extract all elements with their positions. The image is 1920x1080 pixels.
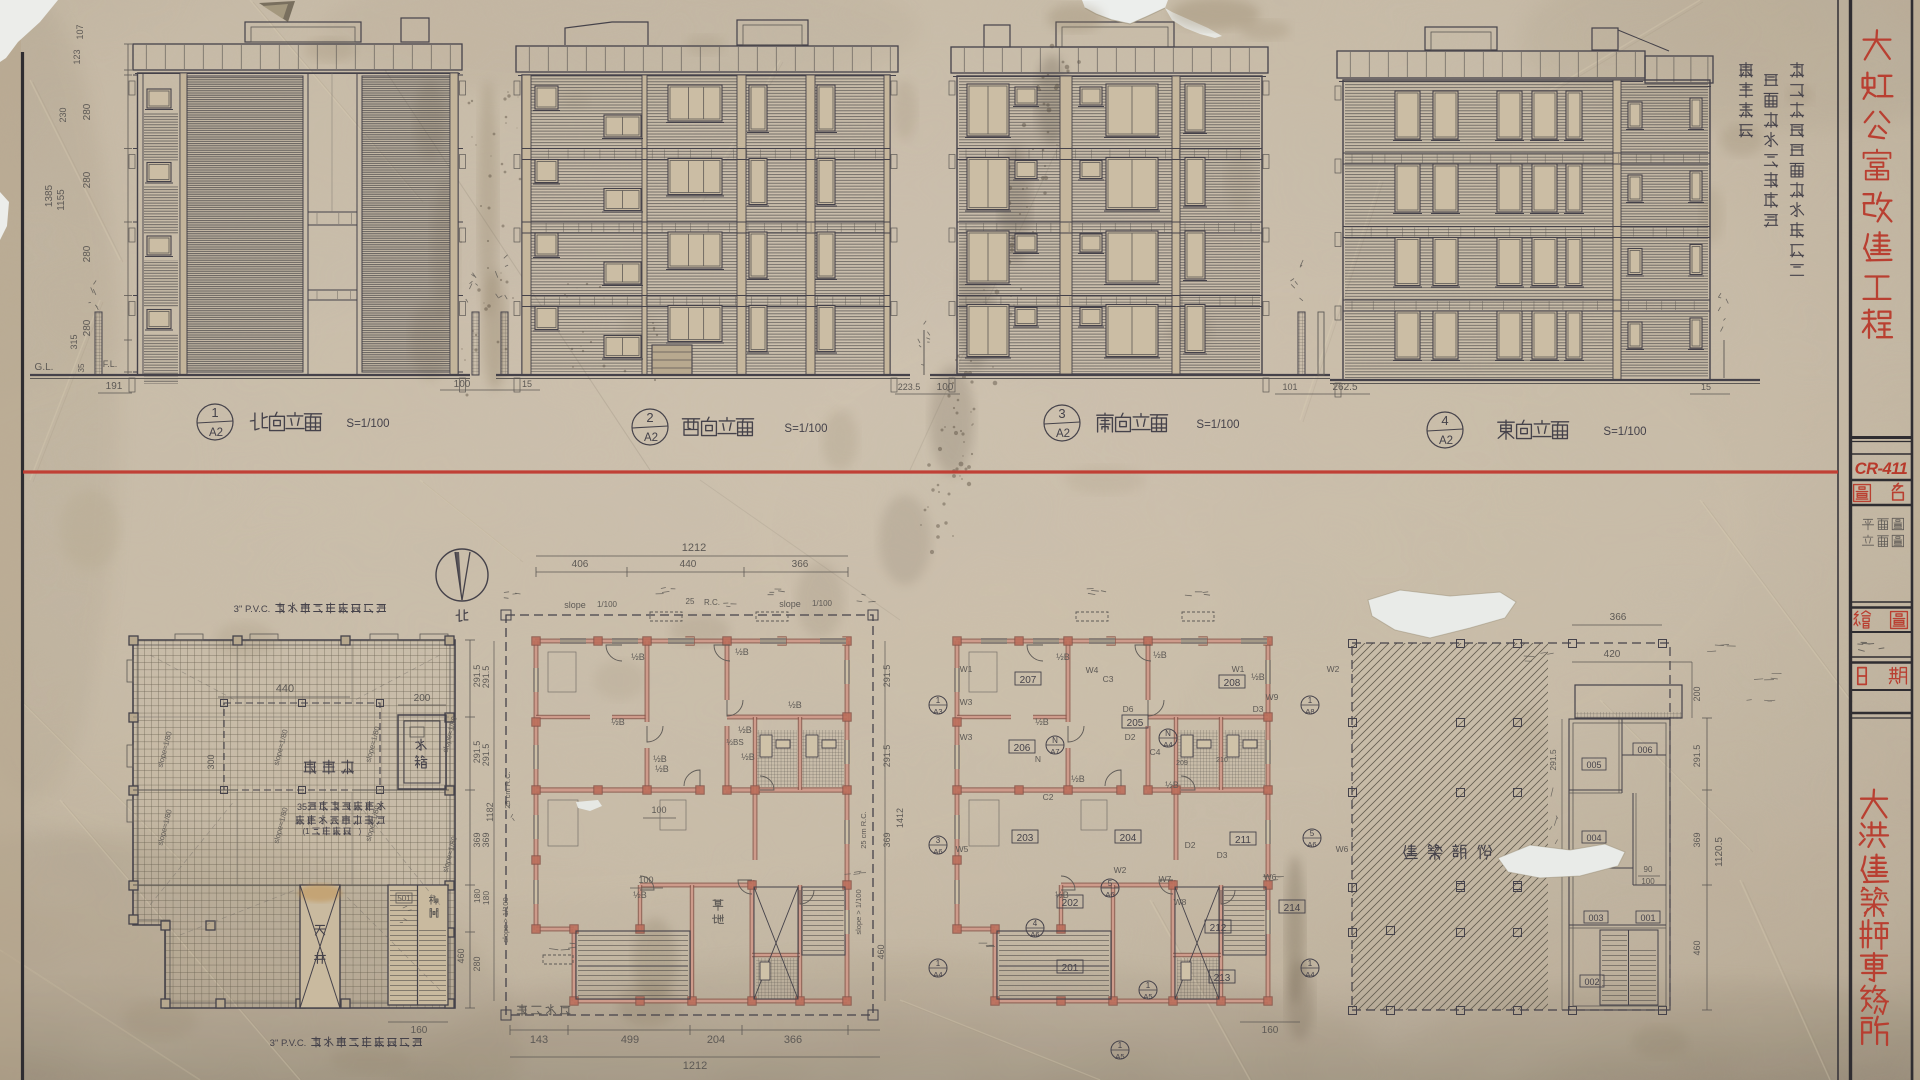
svg-text:3: 3 [1058,406,1065,421]
svg-text:A2: A2 [644,432,658,444]
svg-text:1: 1 [1308,959,1313,968]
svg-text:291.5: 291.5 [1548,749,1558,771]
svg-text:1212: 1212 [682,542,706,554]
svg-text:100: 100 [937,382,954,393]
svg-text:A4: A4 [1305,970,1314,979]
svg-text:369: 369 [1692,832,1702,847]
svg-text:½B: ½B [631,652,645,662]
svg-text:A4: A4 [933,970,942,979]
svg-text:W4: W4 [1086,665,1099,675]
svg-text:1/100: 1/100 [812,599,833,608]
svg-text:A5: A5 [1115,1052,1124,1061]
svg-text:A8: A8 [1305,707,1314,716]
svg-text:366: 366 [1610,612,1627,623]
svg-text:½BS: ½BS [726,738,743,747]
svg-text:369: 369 [882,832,892,847]
svg-text:2: 2 [646,410,653,425]
svg-text:280: 280 [82,319,93,336]
svg-text:366: 366 [784,1034,802,1046]
svg-text:A6: A6 [933,847,942,856]
svg-text:002: 002 [1584,977,1599,987]
svg-text:100: 100 [454,379,471,390]
svg-text:A6: A6 [1105,890,1114,899]
svg-text:460: 460 [876,944,886,959]
svg-text:slope: slope [779,599,801,609]
svg-text:211: 211 [1235,835,1251,846]
svg-text:209: 209 [1176,760,1188,767]
svg-text:D2: D2 [1125,732,1136,742]
svg-text:½B: ½B [611,717,625,727]
svg-text:003: 003 [1588,913,1603,923]
svg-text:291.5: 291.5 [481,666,491,689]
svg-text:206: 206 [1014,743,1031,754]
svg-text:½B: ½B [1071,774,1085,784]
svg-text:A6: A6 [1307,840,1316,849]
svg-text:A4: A4 [1163,740,1172,749]
svg-text:½B: ½B [741,752,755,762]
svg-text:440: 440 [276,683,294,695]
svg-text:½B: ½B [1153,650,1167,660]
svg-text:406: 406 [572,559,589,570]
svg-text:4: 4 [1441,413,1448,428]
svg-text:006: 006 [1637,745,1652,755]
svg-text:25: 25 [686,597,695,606]
svg-text:1: 1 [1146,981,1151,990]
svg-text:CR-411: CR-411 [1855,460,1908,478]
svg-text:S=1/100: S=1/100 [346,418,389,430]
svg-text:35: 35 [297,802,307,812]
svg-text:005: 005 [1586,760,1601,770]
svg-text:204: 204 [1120,833,1137,844]
svg-text:160: 160 [411,1025,428,1036]
svg-text:499: 499 [621,1034,639,1046]
svg-text:123: 123 [72,49,82,64]
svg-text:W3: W3 [960,732,973,742]
svg-text:5: 5 [1310,829,1315,838]
svg-text:slope > 1/100: slope > 1/100 [501,897,510,942]
svg-text:C3: C3 [1103,674,1114,684]
svg-text:366: 366 [792,559,809,570]
svg-text:W2: W2 [1114,865,1127,875]
svg-text:W2: W2 [1327,664,1340,674]
svg-text:207: 207 [1020,675,1037,686]
svg-text:291.5: 291.5 [882,665,892,688]
svg-text:160: 160 [1262,1025,1279,1036]
svg-text:004: 004 [1586,833,1601,843]
svg-text:501: 501 [397,894,411,903]
svg-text:W1: W1 [1232,664,1245,674]
svg-text:280: 280 [82,171,93,188]
svg-text:280: 280 [82,245,93,262]
svg-text:): ) [359,827,362,836]
svg-text:1: 1 [936,696,941,705]
svg-text:N: N [1165,729,1171,738]
svg-text:210: 210 [1216,757,1228,764]
svg-text:½B: ½B [1035,717,1049,727]
svg-text:440: 440 [680,559,697,570]
svg-text:1412: 1412 [895,808,905,828]
svg-text:½B: ½B [1055,890,1069,900]
svg-text:300: 300 [206,754,216,769]
svg-text:A5: A5 [1143,992,1152,1001]
svg-text:100: 100 [1641,877,1655,886]
svg-text:1/100: 1/100 [597,600,618,609]
svg-text:½B: ½B [1251,672,1265,682]
svg-text:½B: ½B [788,700,802,710]
svg-text:D3: D3 [1253,704,1264,714]
svg-text:5: 5 [1108,879,1113,888]
svg-text:N: N [1052,736,1058,745]
svg-text:230: 230 [58,107,68,122]
svg-text:460: 460 [456,948,466,963]
svg-text:A7: A7 [1050,747,1059,756]
svg-text:A2: A2 [1439,435,1453,447]
svg-text:D6: D6 [1123,704,1134,714]
svg-text:460: 460 [1692,940,1702,955]
svg-text:S=1/100: S=1/100 [784,423,827,435]
svg-text:W8: W8 [1174,897,1187,907]
svg-text:C4: C4 [1150,747,1161,757]
svg-text:slope: slope [564,600,586,610]
svg-text:200: 200 [414,693,431,704]
svg-text:203: 203 [1017,833,1034,844]
svg-text:180: 180 [481,891,491,905]
svg-text:291.5: 291.5 [481,744,491,767]
svg-text:101: 101 [1282,382,1297,392]
svg-text:1: 1 [211,405,218,420]
svg-text:214: 214 [1284,903,1301,914]
svg-text:25 cm R.C.: 25 cm R.C. [859,811,868,849]
svg-text:3: 3 [936,836,941,845]
svg-text:A3: A3 [933,707,942,716]
svg-text:W9: W9 [1266,692,1279,702]
svg-text:1: 1 [936,959,941,968]
svg-text:201: 201 [1062,963,1079,974]
svg-text:½B: ½B [735,647,749,657]
svg-text:4: 4 [1033,919,1038,928]
svg-text:1: 1 [1308,696,1313,705]
svg-text:143: 143 [530,1034,548,1046]
svg-text:N: N [1035,754,1041,764]
svg-text:1182: 1182 [485,802,495,821]
svg-text:291.5: 291.5 [1692,745,1702,768]
svg-text:C2: C2 [1043,792,1054,802]
svg-text:S=1/100: S=1/100 [1196,419,1239,431]
svg-text:W1: W1 [960,664,973,674]
svg-text:W5: W5 [956,844,969,854]
svg-text:G.L.: G.L. [35,362,54,373]
svg-text:A2: A2 [209,427,223,439]
svg-text:15: 15 [1701,382,1711,392]
svg-text:107: 107 [75,24,85,39]
svg-text:35: 35 [77,363,86,372]
svg-text:315: 315 [69,334,79,349]
svg-text:223.5: 223.5 [898,382,921,392]
svg-text:W6: W6 [1336,844,1349,854]
svg-text:½B: ½B [653,754,667,764]
svg-text:291.5: 291.5 [882,745,892,768]
svg-text:100: 100 [651,805,666,815]
svg-text:R.C.: R.C. [704,598,720,607]
svg-text:208: 208 [1224,678,1241,689]
svg-text:½B: ½B [1165,780,1179,790]
svg-text:½B: ½B [1056,652,1070,662]
svg-text:280: 280 [82,103,93,120]
svg-text:slope > 1/100: slope > 1/100 [854,889,863,934]
svg-text:A6: A6 [1030,930,1039,939]
svg-text:3" P.V.C.: 3" P.V.C. [234,604,271,615]
svg-text:25 cm R.C.: 25 cm R.C. [503,771,512,809]
svg-text:1385: 1385 [44,184,55,207]
svg-text:W7: W7 [1159,874,1172,884]
svg-text:280: 280 [472,956,482,971]
svg-text:3" P.V.C.: 3" P.V.C. [270,1038,307,1049]
svg-text:1155: 1155 [56,189,67,211]
svg-text:420: 420 [1604,649,1621,660]
svg-text:½B: ½B [655,764,669,774]
svg-text:90: 90 [1644,865,1653,874]
svg-text:A2: A2 [1056,428,1070,440]
svg-text:F.L.: F.L. [103,359,118,369]
svg-text:200: 200 [1692,686,1702,701]
svg-text:100: 100 [638,875,653,885]
svg-text:204: 204 [707,1034,725,1046]
svg-text:212: 212 [1210,923,1227,934]
svg-text:213: 213 [1214,973,1231,984]
svg-text:1212: 1212 [683,1060,707,1072]
svg-text:W3: W3 [960,697,973,707]
svg-text:(1: (1 [302,827,310,836]
svg-text:S=1/100: S=1/100 [1603,426,1646,438]
svg-text:191: 191 [106,381,123,392]
svg-text:001: 001 [1640,913,1655,923]
svg-text:D3: D3 [1217,850,1228,860]
svg-text:½B: ½B [738,725,752,735]
svg-text:D2: D2 [1185,840,1196,850]
svg-text:½B: ½B [633,890,647,900]
svg-text:205: 205 [1127,718,1144,729]
svg-text:369: 369 [481,832,491,847]
svg-text:1120.5: 1120.5 [1714,837,1725,867]
svg-text:1: 1 [1118,1041,1123,1050]
svg-text:15: 15 [522,379,532,389]
